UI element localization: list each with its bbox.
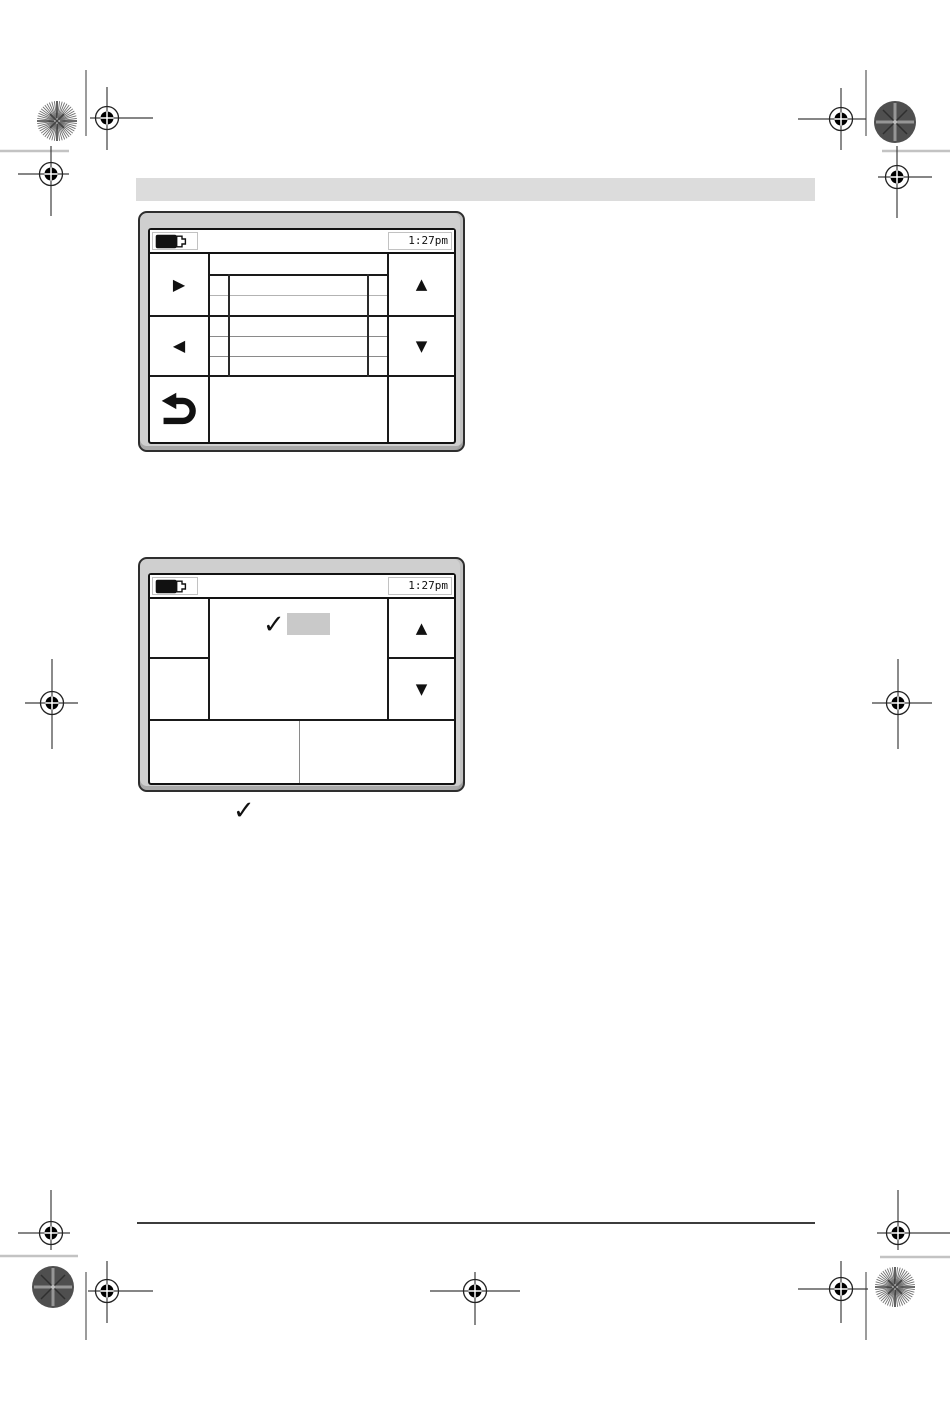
registration-mark bbox=[872, 659, 932, 749]
color-pinwheel-mark bbox=[37, 101, 77, 141]
divider-line bbox=[208, 599, 210, 721]
screen2-clock: 1:27pm bbox=[388, 577, 452, 595]
section-header-bar bbox=[136, 178, 815, 201]
divider-line bbox=[150, 719, 454, 721]
trim-rule bbox=[0, 70, 86, 151]
scroll-up-button[interactable]: ▲ bbox=[389, 254, 454, 315]
return-button[interactable] bbox=[150, 377, 208, 442]
screen1-time-label: 1:27pm bbox=[389, 233, 451, 249]
return-arrow-icon bbox=[157, 390, 201, 430]
color-patch-mark bbox=[874, 101, 916, 143]
scroll-up-button[interactable]: ▲ bbox=[389, 599, 454, 657]
device-screen-2: 1:27pm ✓ ▲ ▼ bbox=[138, 557, 465, 792]
divider-line bbox=[299, 721, 300, 783]
registration-mark bbox=[878, 146, 932, 218]
trim-rule bbox=[866, 70, 950, 151]
up-arrow-icon: ▲ bbox=[416, 621, 428, 636]
device-screen-1: 1:27pm ▶ ◀ bbox=[138, 211, 465, 452]
play-icon: ▶ bbox=[173, 277, 185, 293]
screen2-time-label: 1:27pm bbox=[389, 578, 451, 594]
screen2-status-bar: 1:27pm bbox=[150, 575, 454, 599]
check-icon: ✓ bbox=[263, 612, 285, 638]
scroll-down-button[interactable]: ▼ bbox=[389, 659, 454, 719]
registration-mark bbox=[798, 1261, 868, 1323]
trim-rule bbox=[0, 1256, 86, 1340]
previous-icon: ◀ bbox=[173, 338, 185, 354]
registration-mark bbox=[18, 1190, 70, 1250]
screen1-display: 1:27pm ▶ ◀ bbox=[148, 228, 456, 444]
registration-mark bbox=[798, 88, 866, 150]
footer-rule bbox=[137, 1222, 815, 1224]
list-row-line bbox=[210, 274, 387, 276]
down-arrow-icon: ▼ bbox=[416, 682, 428, 697]
registration-mark bbox=[877, 1190, 950, 1250]
list-column-line bbox=[228, 274, 230, 377]
screen2-battery-indicator bbox=[152, 577, 198, 595]
registration-mark bbox=[18, 146, 69, 216]
divider-line bbox=[150, 657, 208, 659]
color-pinwheel-mark bbox=[875, 1267, 915, 1307]
list-column-line bbox=[367, 274, 369, 377]
color-patch-mark bbox=[32, 1266, 74, 1308]
manual-page: 1:27pm ▶ ◀ bbox=[0, 0, 950, 1409]
screen2-display: 1:27pm ✓ ▲ ▼ bbox=[148, 573, 456, 785]
registration-mark bbox=[90, 87, 153, 150]
battery-icon bbox=[155, 579, 187, 594]
registration-mark bbox=[430, 1272, 520, 1325]
selected-item-highlight[interactable] bbox=[287, 613, 330, 635]
scroll-down-button[interactable]: ▼ bbox=[389, 317, 454, 375]
footnote-check-icon: ✓ bbox=[233, 798, 255, 824]
screen1-status-bar: 1:27pm bbox=[150, 230, 454, 254]
trim-rule bbox=[866, 1257, 950, 1340]
list-row-line bbox=[210, 356, 387, 357]
up-arrow-icon: ▲ bbox=[416, 277, 428, 292]
screen1-battery-indicator bbox=[152, 232, 198, 250]
screen1-clock: 1:27pm bbox=[388, 232, 452, 250]
battery-icon bbox=[155, 234, 187, 249]
registration-mark bbox=[88, 1261, 153, 1323]
down-arrow-icon: ▼ bbox=[416, 339, 428, 354]
previous-button[interactable]: ◀ bbox=[150, 317, 208, 375]
registration-mark bbox=[25, 659, 78, 749]
play-button[interactable]: ▶ bbox=[150, 254, 208, 315]
divider-line bbox=[208, 254, 210, 442]
list-row-line bbox=[210, 336, 387, 337]
list-row-line bbox=[210, 295, 387, 296]
